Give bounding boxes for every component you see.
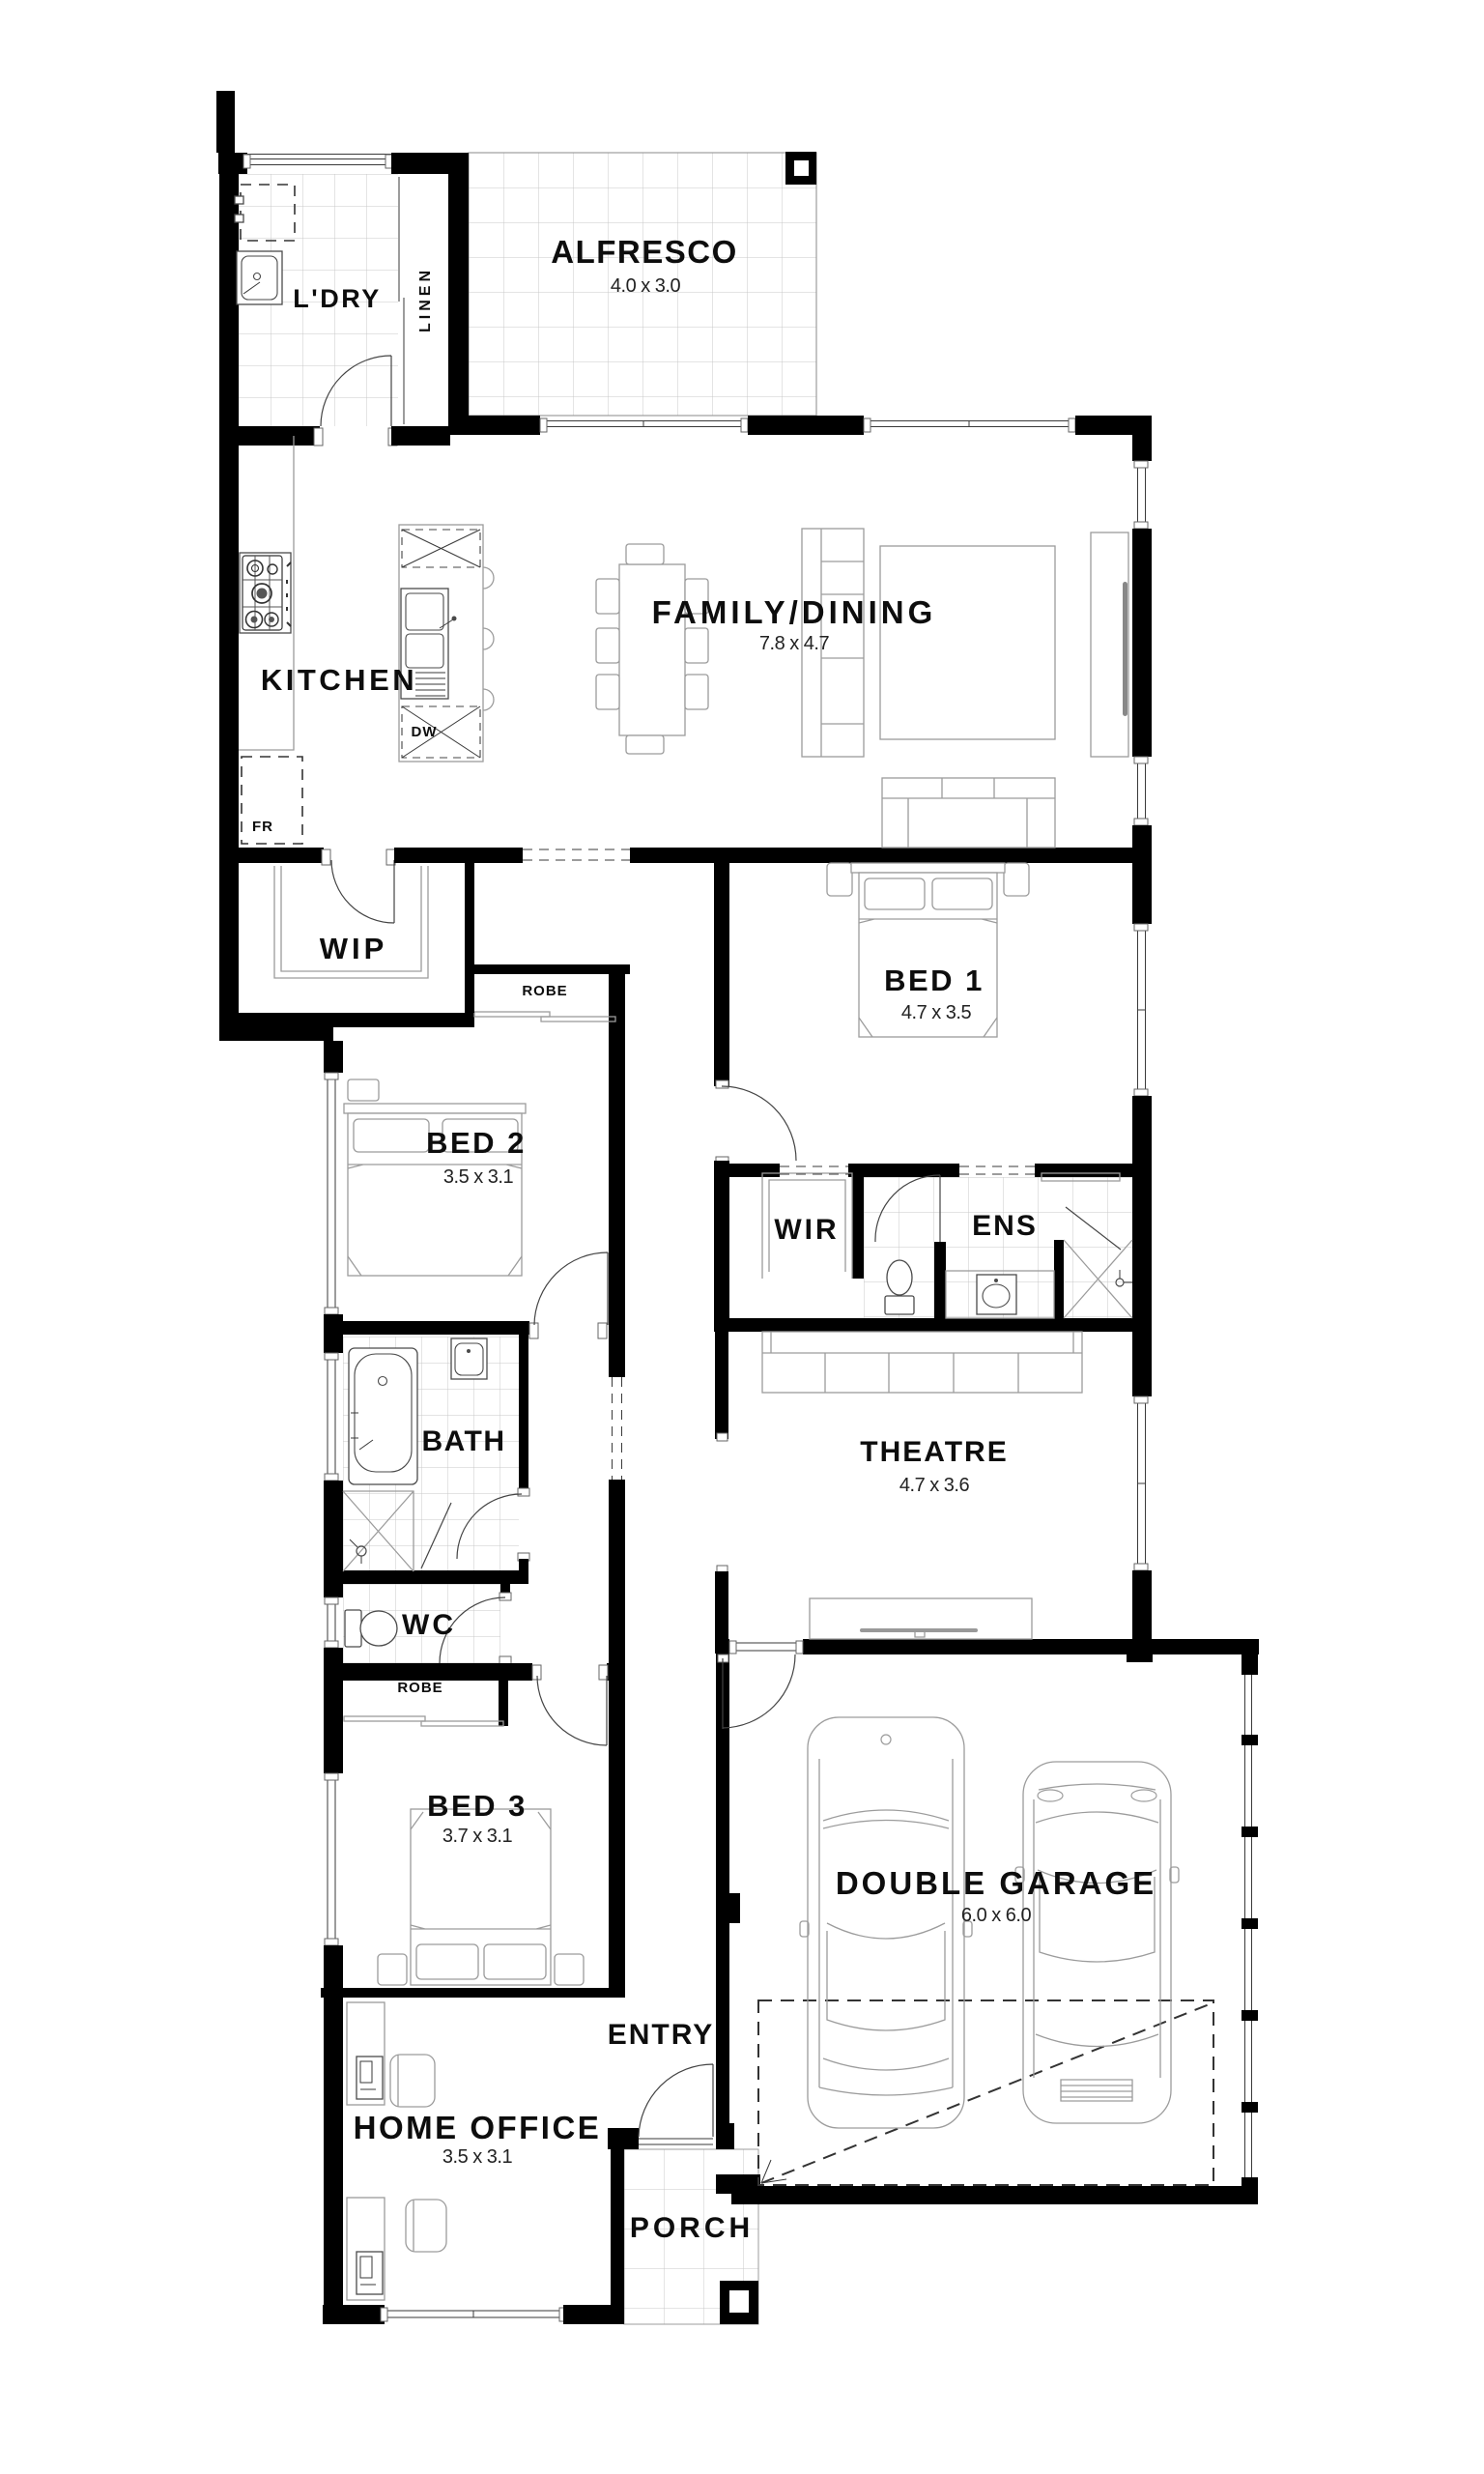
svg-text:LINEN: LINEN — [417, 267, 434, 332]
svg-text:ROBE: ROBE — [522, 983, 567, 999]
svg-text:DW: DW — [412, 724, 438, 740]
svg-text:WIR: WIR — [774, 1214, 839, 1246]
svg-text:4.7 x 3.5: 4.7 x 3.5 — [901, 1002, 972, 1023]
svg-text:KITCHEN: KITCHEN — [261, 663, 417, 697]
svg-text:3.5 x 3.1: 3.5 x 3.1 — [443, 1166, 514, 1188]
svg-text:7.8 x 4.7: 7.8 x 4.7 — [759, 633, 830, 654]
svg-text:BED 2: BED 2 — [426, 1126, 527, 1160]
svg-text:BED 1: BED 1 — [884, 964, 985, 997]
svg-text:HOME OFFICE: HOME OFFICE — [354, 2110, 602, 2145]
svg-text:ALFRESCO: ALFRESCO — [551, 234, 738, 270]
svg-text:L'DRY: L'DRY — [293, 284, 381, 313]
svg-text:FR: FR — [252, 819, 273, 835]
svg-text:4.0 x 3.0: 4.0 x 3.0 — [611, 275, 681, 297]
svg-text:DOUBLE GARAGE: DOUBLE GARAGE — [836, 1865, 1156, 1901]
svg-text:BATH: BATH — [421, 1425, 505, 1457]
svg-text:ROBE: ROBE — [397, 1680, 442, 1696]
svg-text:THEATRE: THEATRE — [860, 1436, 1008, 1468]
svg-text:ENTRY: ENTRY — [608, 2019, 715, 2051]
svg-text:FAMILY/DINING: FAMILY/DINING — [652, 594, 937, 630]
svg-text:3.7 x 3.1: 3.7 x 3.1 — [442, 1826, 513, 1847]
svg-text:3.5 x 3.1: 3.5 x 3.1 — [442, 2146, 513, 2168]
svg-text:4.7 x 3.6: 4.7 x 3.6 — [899, 1475, 970, 1496]
svg-text:BED 3: BED 3 — [427, 1789, 528, 1823]
svg-text:WC: WC — [402, 1609, 456, 1641]
svg-text:PORCH: PORCH — [630, 2212, 754, 2244]
svg-text:WIP: WIP — [320, 932, 388, 965]
svg-text:6.0 x 6.0: 6.0 x 6.0 — [961, 1905, 1032, 1926]
svg-text:ENS: ENS — [972, 1210, 1038, 1242]
